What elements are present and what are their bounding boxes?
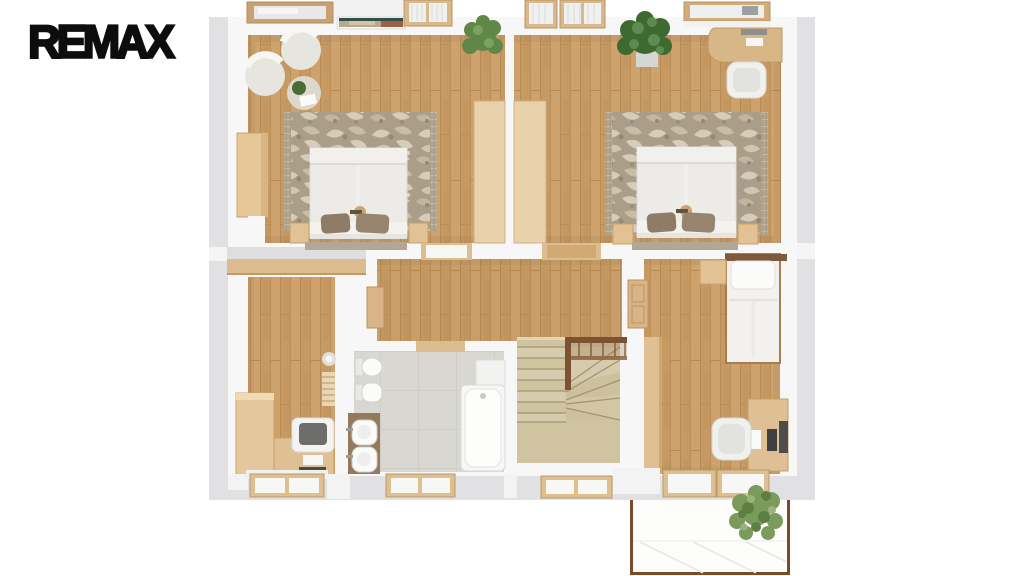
svg-text:REMAX: REMAX — [28, 16, 175, 68]
